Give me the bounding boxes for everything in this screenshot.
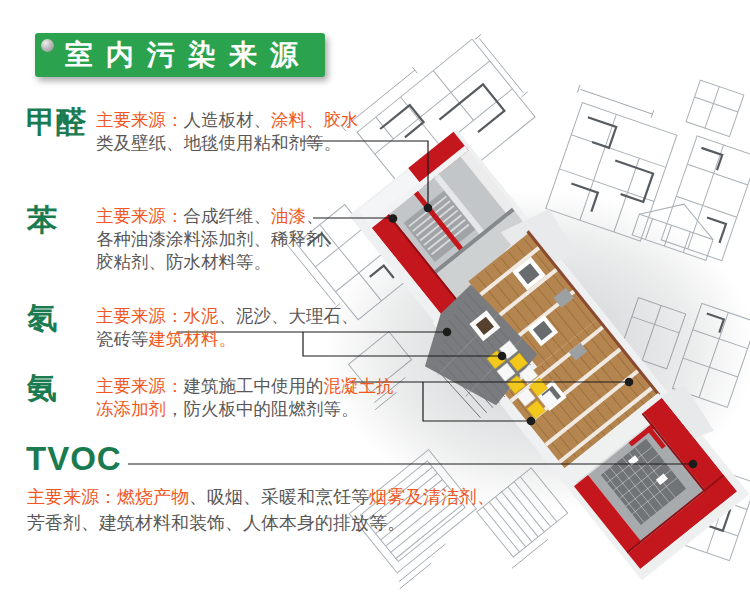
text-segment: 类及壁纸、地毯使用粘和剂等。 bbox=[96, 133, 341, 153]
text-segment: 主要来源：水泥 bbox=[96, 306, 219, 326]
text-segment: 芳香剂、建筑材料和装饰、人体本身的排放等。 bbox=[27, 513, 405, 533]
callout-dot-formaldehyde bbox=[424, 204, 433, 213]
text-line: 主要来源：人造板材、涂料、胶水 bbox=[96, 109, 359, 132]
text-segment: 瓷砖等 bbox=[96, 329, 149, 349]
text-segment: 胶粘剂、防水材料等。 bbox=[96, 252, 271, 272]
callout-dot-radon-roof bbox=[443, 328, 452, 337]
pollutant-label-tvoc: TVOC bbox=[26, 440, 122, 478]
text-segment: 油漆 bbox=[271, 206, 306, 226]
page-title: 室内污染来源 bbox=[65, 33, 311, 77]
text-segment: 各种油漆涂料添加剂、稀释剂、 bbox=[96, 229, 341, 249]
text-line: 芳香剂、建筑材料和装饰、人体本身的排放等。 bbox=[27, 510, 495, 536]
text-segment: 烟雾及清洁剂、 bbox=[369, 487, 495, 507]
callout-dot-ammonia-floor bbox=[527, 417, 536, 426]
text-line: 冻添加剂，防火板中的阻燃剂等。 bbox=[96, 398, 394, 421]
text-segment: ，防火板中的阻燃剂等。 bbox=[166, 399, 359, 419]
pollutant-desc-tvoc: 主要来源：燃烧产物、吸烟、采暖和烹饪等烟雾及清洁剂、芳香剂、建筑材料和装饰、人体… bbox=[27, 484, 495, 536]
pollutant-label-ammonia: 氨 bbox=[27, 368, 57, 409]
pollutant-label-formaldehyde: 甲醛 bbox=[26, 102, 86, 143]
text-segment: 、吸烟、采暖和烹饪等 bbox=[189, 487, 369, 507]
infographic-canvas: 室内污染来源 甲醛 主要来源：人造板材、涂料、胶水类及壁纸、地毯使用粘和剂等。 … bbox=[0, 0, 750, 611]
text-line: 类及壁纸、地毯使用粘和剂等。 bbox=[96, 132, 359, 155]
text-segment: 混凝土抗 bbox=[324, 376, 394, 396]
pollutant-label-benzene: 苯 bbox=[27, 200, 57, 241]
text-segment: 主要来源： bbox=[96, 206, 184, 226]
pollutant-desc-radon: 主要来源：水泥、泥沙、大理石、瓷砖等建筑材料。 bbox=[96, 305, 359, 351]
text-line: 主要来源：建筑施工中使用的混凝土抗 bbox=[96, 375, 394, 398]
callout-dot-tvoc bbox=[689, 460, 698, 469]
callout-dot-radon-floor bbox=[498, 352, 507, 361]
text-segment: 人造板材、 bbox=[184, 110, 272, 130]
text-line: 瓷砖等建筑材料。 bbox=[96, 328, 359, 351]
pollutant-label-radon: 氡 bbox=[27, 298, 57, 339]
text-segment: 合成纤维、 bbox=[184, 206, 272, 226]
text-segment: 主要来源： bbox=[96, 376, 184, 396]
text-line: 主要来源：燃烧产物、吸烟、采暖和烹饪等烟雾及清洁剂、 bbox=[27, 484, 495, 510]
text-line: 主要来源：合成纤维、油漆、 bbox=[96, 205, 341, 228]
pollutant-desc-ammonia: 主要来源：建筑施工中使用的混凝土抗冻添加剂，防火板中的阻燃剂等。 bbox=[96, 375, 394, 421]
text-segment: 冻添加剂 bbox=[96, 399, 166, 419]
callout-dot-ammonia-right bbox=[625, 378, 634, 387]
text-segment: 、泥沙、大理石、 bbox=[219, 306, 359, 326]
text-line: 胶粘剂、防水材料等。 bbox=[96, 251, 341, 274]
callout-dot-benzene bbox=[389, 214, 398, 223]
text-line: 主要来源：水泥、泥沙、大理石、 bbox=[96, 305, 359, 328]
text-segment: 主要来源：燃烧产物 bbox=[27, 487, 189, 507]
pollutant-desc-formaldehyde: 主要来源：人造板材、涂料、胶水类及壁纸、地毯使用粘和剂等。 bbox=[96, 109, 359, 155]
pollutant-desc-benzene: 主要来源：合成纤维、油漆、各种油漆涂料添加剂、稀释剂、胶粘剂、防水材料等。 bbox=[96, 205, 341, 274]
header-banner: 室内污染来源 bbox=[35, 33, 325, 77]
text-segment: 涂料、胶水 bbox=[271, 110, 359, 130]
text-segment: 、 bbox=[306, 206, 324, 226]
text-line: 各种油漆涂料添加剂、稀释剂、 bbox=[96, 228, 341, 251]
text-segment: 建筑材料。 bbox=[149, 329, 237, 349]
text-segment: 主要来源： bbox=[96, 110, 184, 130]
text-segment: 建筑施工中使用的 bbox=[184, 376, 324, 396]
bullet-dot-icon bbox=[41, 39, 54, 52]
